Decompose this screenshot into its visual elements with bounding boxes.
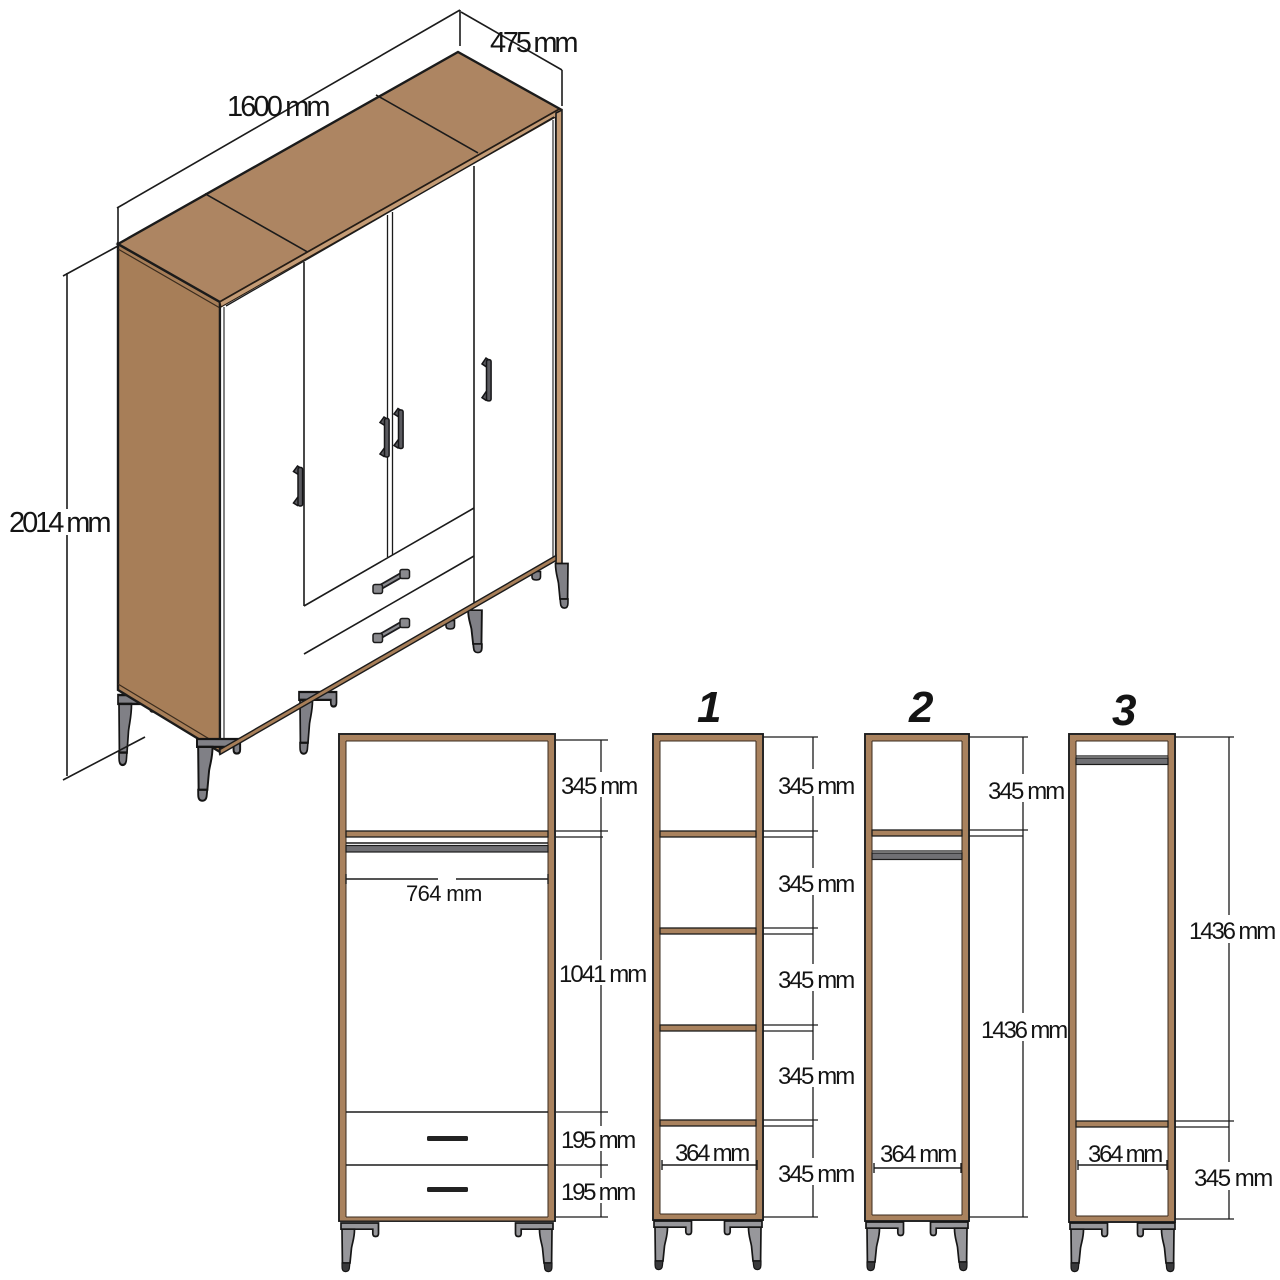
svg-text:3: 3: [1112, 686, 1136, 735]
svg-text:1436 mm: 1436 mm: [981, 1017, 1068, 1044]
svg-text:1: 1: [697, 683, 721, 732]
svg-text:1600 mm: 1600 mm: [227, 91, 330, 123]
svg-text:345 mm: 345 mm: [778, 1063, 855, 1090]
svg-text:364 mm: 364 mm: [675, 1140, 750, 1167]
svg-text:2: 2: [908, 683, 934, 732]
svg-text:195 mm: 195 mm: [561, 1127, 636, 1154]
svg-text:195 mm: 195 mm: [561, 1179, 636, 1206]
svg-text:764 mm: 764 mm: [406, 881, 482, 906]
svg-text:364 mm: 364 mm: [1088, 1141, 1163, 1168]
svg-text:345 mm: 345 mm: [1194, 1165, 1273, 1192]
svg-text:364 mm: 364 mm: [880, 1141, 957, 1168]
svg-text:345 mm: 345 mm: [778, 773, 855, 800]
svg-text:345 mm: 345 mm: [561, 773, 638, 800]
svg-text:2014 mm: 2014 mm: [9, 507, 111, 539]
svg-text:345 mm: 345 mm: [778, 871, 855, 898]
svg-text:475 mm: 475 mm: [490, 27, 578, 59]
svg-text:345 mm: 345 mm: [778, 1161, 855, 1188]
svg-text:345 mm: 345 mm: [778, 967, 855, 994]
svg-text:1041 mm: 1041 mm: [559, 961, 647, 988]
svg-text:345 mm: 345 mm: [988, 778, 1065, 805]
svg-text:1436 mm: 1436 mm: [1189, 918, 1276, 945]
